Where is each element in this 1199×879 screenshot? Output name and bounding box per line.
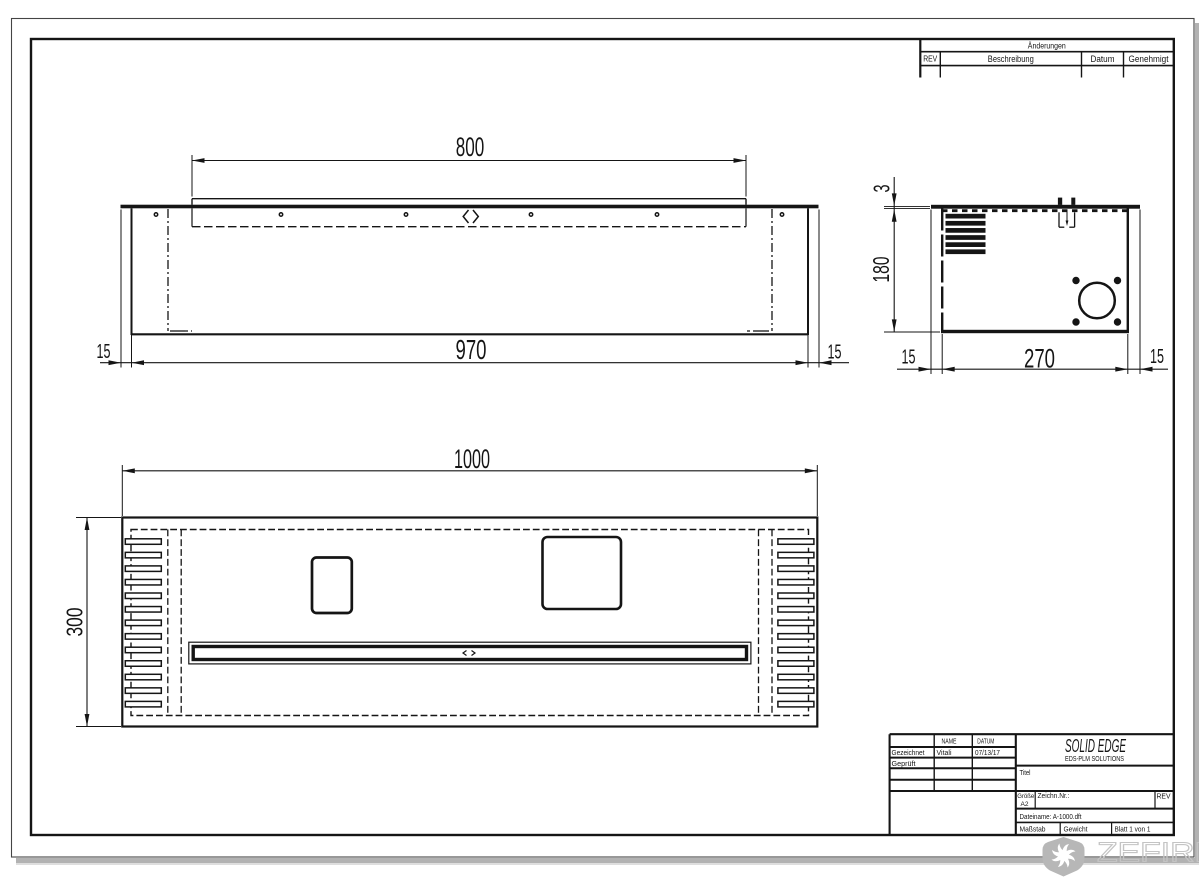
svg-text:970: 970 bbox=[456, 334, 487, 365]
svg-text:15: 15 bbox=[828, 340, 842, 363]
svg-text:DATUM: DATUM bbox=[977, 738, 994, 745]
svg-text:Änderungen: Änderungen bbox=[1028, 40, 1066, 50]
svg-text:Titel: Titel bbox=[1020, 770, 1031, 777]
svg-text:Gewicht: Gewicht bbox=[1064, 826, 1088, 833]
svg-text:180: 180 bbox=[868, 257, 894, 283]
svg-text:ZEFIRE: ZEFIRE bbox=[1097, 837, 1199, 868]
svg-text:270: 270 bbox=[1024, 343, 1055, 373]
svg-text:REV: REV bbox=[923, 55, 938, 64]
svg-text:Gezeichnet: Gezeichnet bbox=[892, 750, 925, 757]
svg-text:Blatt 1 von 1: Blatt 1 von 1 bbox=[1115, 826, 1151, 833]
svg-text:800: 800 bbox=[456, 132, 485, 162]
svg-text:300: 300 bbox=[61, 608, 87, 637]
svg-text:3: 3 bbox=[869, 185, 895, 193]
svg-text:SOLID EDGE: SOLID EDGE bbox=[1065, 736, 1127, 756]
svg-text:15: 15 bbox=[1150, 345, 1164, 368]
svg-text:Datum: Datum bbox=[1091, 54, 1115, 64]
svg-text:Zeichn.Nr.:: Zeichn.Nr.: bbox=[1038, 793, 1070, 800]
svg-text:REV: REV bbox=[1157, 793, 1171, 800]
svg-text:Geprüft: Geprüft bbox=[892, 761, 916, 768]
svg-text:Genehmigt: Genehmigt bbox=[1129, 54, 1169, 64]
svg-text:Beschreibung: Beschreibung bbox=[988, 54, 1034, 64]
svg-text:Größe: Größe bbox=[1017, 793, 1034, 800]
svg-text:Dateiname: A-1000.dft: Dateiname: A-1000.dft bbox=[1020, 814, 1082, 821]
svg-text:15: 15 bbox=[97, 340, 111, 363]
svg-text:1000: 1000 bbox=[454, 444, 490, 474]
svg-text:A2: A2 bbox=[1021, 801, 1029, 808]
svg-text:07/13/17: 07/13/17 bbox=[975, 750, 1000, 757]
svg-text:EDS-PLM SOLUTIONS: EDS-PLM SOLUTIONS bbox=[1065, 756, 1124, 763]
svg-text:15: 15 bbox=[902, 345, 916, 368]
svg-text:Maßstab: Maßstab bbox=[1020, 826, 1046, 833]
svg-text:Vitali: Vitali bbox=[937, 750, 952, 757]
svg-text:NAME: NAME bbox=[942, 738, 957, 745]
